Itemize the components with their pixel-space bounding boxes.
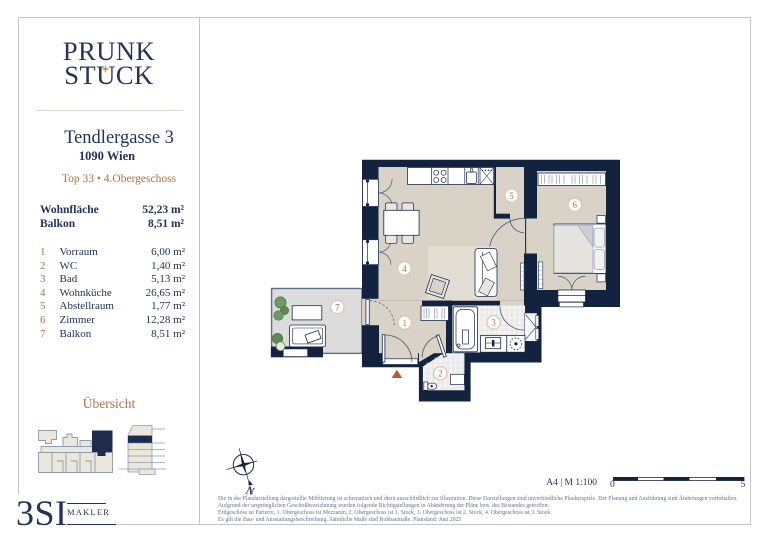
svg-text:1: 1: [402, 318, 407, 328]
svg-text:7: 7: [335, 302, 340, 312]
svg-text:4: 4: [402, 264, 407, 274]
svg-text:3: 3: [491, 318, 496, 328]
svg-text:2: 2: [438, 369, 443, 379]
svg-text:N: N: [244, 485, 257, 499]
svg-text:6: 6: [573, 200, 578, 210]
svg-text:5: 5: [509, 191, 514, 201]
